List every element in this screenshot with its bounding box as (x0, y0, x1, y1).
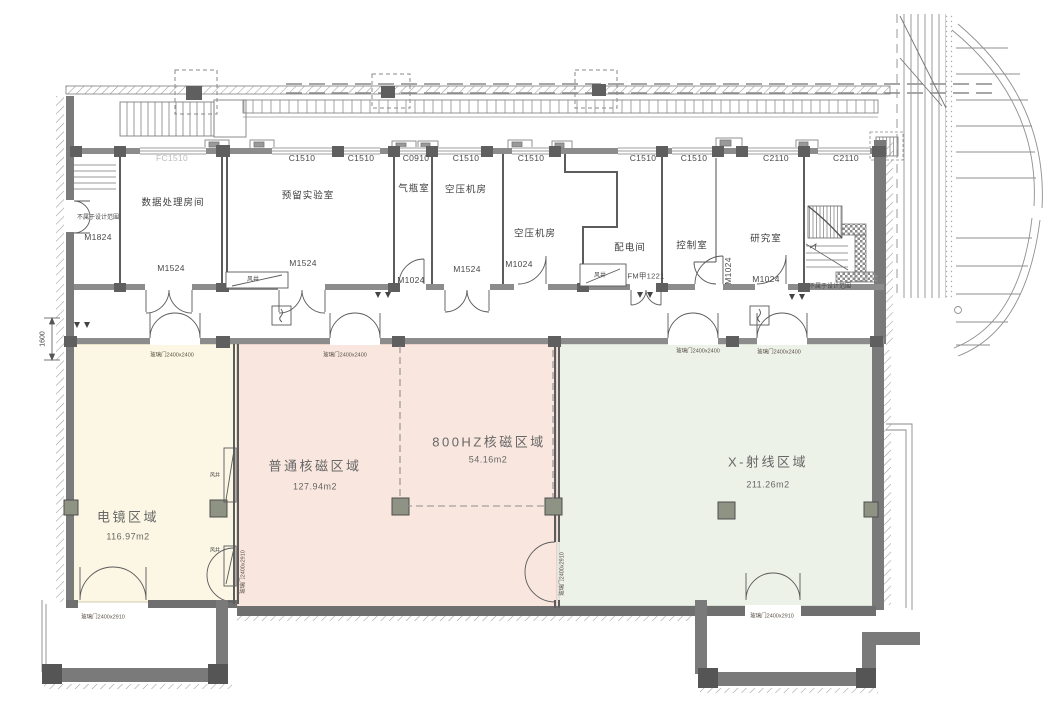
shaft-label: 风井 (210, 549, 220, 554)
glass-door-label-2400: 玻璃门2400x2400 (323, 353, 367, 359)
window-code: C1510 (518, 154, 545, 163)
out-of-scope-note: 不属于设计范围 (77, 215, 119, 221)
glass-door-label-2400: 玻璃门2400x2400 (757, 350, 801, 356)
zone-fill-xray (559, 344, 876, 606)
window-code: C1510 (681, 154, 708, 163)
zone-area-800hz-nmr: 54.16m2 (469, 456, 508, 465)
room-label-gas-cylinder: 气瓶室 (398, 184, 430, 194)
zone-area-normal-nmr: 127.94m2 (293, 483, 337, 492)
window-code: C1510 (348, 154, 375, 163)
room-label-power-distribution: 配电间 (614, 243, 646, 253)
window-code: C1510 (630, 154, 657, 163)
glass-door-label-2910-vertical: 玻璃门2400x2910 (560, 552, 566, 596)
window-code: C0910 (403, 154, 430, 163)
door-code-fm1221: FM甲1221 (627, 272, 664, 280)
room-label-data-processing: 数据处理房间 (141, 198, 204, 208)
window-code: C1510 (289, 154, 316, 163)
door-code-m1024: M1024 (752, 275, 780, 284)
glass-door-label-2910: 玻璃门2400x2910 (750, 614, 794, 620)
glass-door-label-2910-vertical: 玻璃门2400x2910 (241, 550, 247, 594)
floor-plan: FC1510 C1510 C1510 C0910 C1510 C1510 C15… (0, 0, 1047, 704)
zone-name-electron-microscope: 电镜区域 (97, 511, 159, 524)
room-label-research: 研究室 (750, 234, 782, 244)
zone-area-electron-microscope: 116.97m2 (106, 533, 149, 542)
shaft-label: 风井 (210, 474, 220, 479)
window-code: C2110 (763, 154, 789, 163)
room-label-compressor-2: 空压机房 (514, 229, 556, 239)
door-code-m1024-vertical: M1024 (724, 257, 733, 285)
shaft-label: 风井 (594, 273, 606, 279)
door-code-m1524: M1524 (289, 259, 317, 268)
glass-door-label-2400: 玻璃门2400x2400 (676, 349, 720, 355)
out-of-scope-note: 不属于设计范围 (809, 284, 851, 290)
zone-name-normal-nmr: 普通核磁区域 (268, 460, 361, 473)
window-code: C2110 (833, 154, 859, 163)
dimension-text-1600: 1600 (40, 331, 47, 347)
valve-symbols (74, 292, 805, 328)
room-label-reserved-lab: 预留实验室 (282, 191, 335, 201)
room-label-control: 控制室 (676, 241, 708, 251)
glass-door-label-2910: 玻璃门2400x2910 (81, 615, 125, 621)
zone-fills (72, 344, 876, 608)
door-code-m1524: M1524 (157, 264, 185, 273)
roof-walkway (66, 70, 994, 160)
zone-name-800hz-nmr: 800HZ核磁区域 (432, 436, 546, 449)
zone-name-xray: X-射线区域 (728, 456, 808, 469)
fan-canopy (897, 14, 1042, 356)
door-code-m1824: M1824 (84, 233, 112, 242)
shaft-label: 风井 (247, 277, 259, 283)
glass-door-label-2400: 玻璃门2400x2400 (150, 353, 194, 359)
door-code-m1524: M1524 (453, 265, 481, 274)
window-code: C1510 (453, 154, 480, 163)
zone-area-xray: 211.26m2 (746, 481, 789, 490)
window-code: FC1510 (156, 154, 188, 163)
room-label-compressor-1: 空压机房 (445, 185, 487, 195)
door-code-m1024: M1024 (505, 260, 533, 269)
door-code-m1024: M1024 (397, 276, 425, 285)
zone-fill-normal-nmr (237, 344, 557, 608)
